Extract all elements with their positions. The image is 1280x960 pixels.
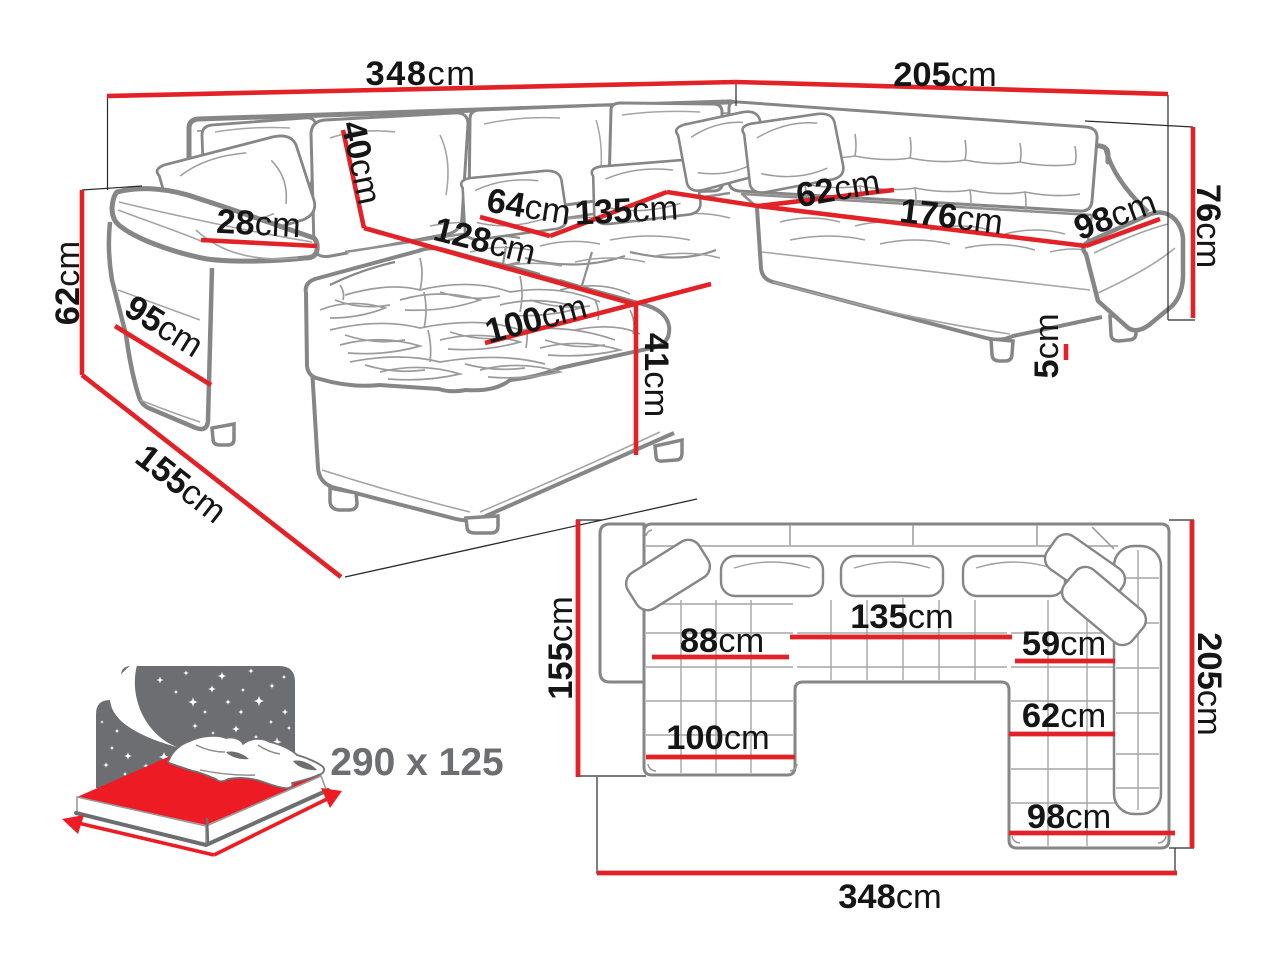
svg-text:348cm: 348cm	[365, 55, 476, 93]
svg-text:205cm: 205cm	[893, 56, 997, 94]
svg-text:41cm: 41cm	[637, 333, 675, 417]
svg-text:59cm: 59cm	[1022, 625, 1106, 663]
svg-text:100cm: 100cm	[666, 719, 770, 757]
svg-text:348cm: 348cm	[838, 878, 942, 916]
svg-text:205cm: 205cm	[1190, 632, 1228, 736]
svg-text:135cm: 135cm	[574, 189, 679, 232]
svg-text:98cm: 98cm	[1027, 798, 1111, 836]
svg-text:290 x 125: 290 x 125	[330, 741, 504, 784]
svg-text:155cm: 155cm	[542, 596, 580, 700]
svg-text:28cm: 28cm	[215, 203, 301, 245]
svg-text:135cm: 135cm	[850, 598, 954, 636]
svg-text:76cm: 76cm	[1189, 184, 1227, 268]
svg-text:62cm: 62cm	[1022, 697, 1106, 735]
svg-text:62cm: 62cm	[49, 241, 87, 325]
svg-text:5cm: 5cm	[1028, 313, 1066, 378]
svg-text:88cm: 88cm	[680, 622, 764, 660]
